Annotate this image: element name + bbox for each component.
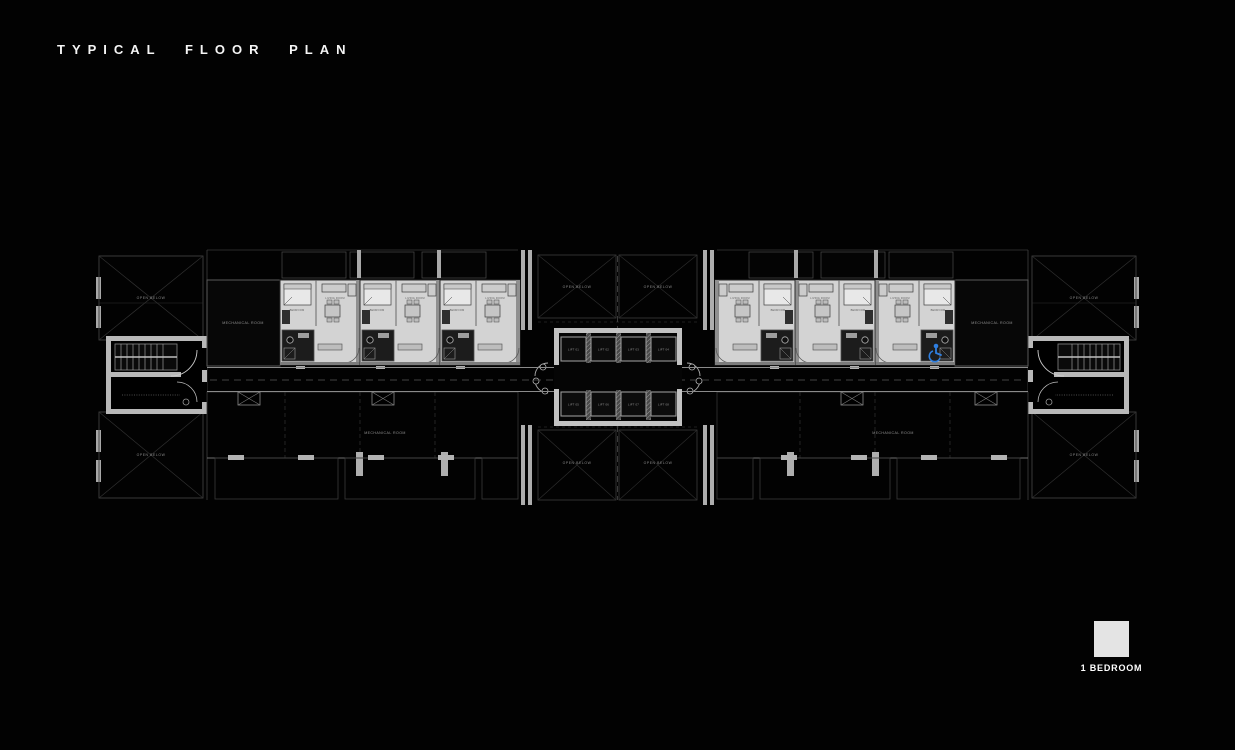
lift-label: LIFT 06 [598,403,609,407]
page-background: TYPICAL FLOOR PLAN [0,0,1235,750]
unit-bedroom-label: BEDROOM [450,308,465,312]
mechanical-room-label: MECHANICAL ROOM [971,321,1013,325]
unit-bedroom-label: BEDROOM [771,308,786,312]
lift-label: LIFT 01 [568,348,579,352]
mechanical-room-label: MECHANICAL ROOM [872,431,914,435]
open-below-label: OPEN BELOW [1070,296,1099,300]
unit-bedroom-label: BEDROOM [931,308,946,312]
open-below-label: OPEN BELOW [563,461,592,465]
open-below-label: OPEN BELOW [563,285,592,289]
lift-label: LIFT 04 [658,348,669,352]
right-wing [619,250,1139,505]
floor-plan-drawing: LIFT 01 LIFT 02 LIFT 03 LIFT 04 LIFT 05 … [0,0,1235,750]
unit-bedroom-label: BEDROOM [370,308,385,312]
unit-bedroom-label: BEDROOM [290,308,305,312]
open-below-label: OPEN BELOW [137,296,166,300]
open-below-label: OPEN BELOW [644,461,673,465]
lift-label: LIFT 08 [658,403,669,407]
unit-living-label: LIVING ROOM [890,296,910,300]
unit-living-label: LIVING ROOM [730,296,750,300]
lift-label: LIFT 02 [598,348,609,352]
left-wing [96,250,616,505]
legend-swatch-1bedroom [1094,621,1129,657]
open-below-label: OPEN BELOW [1070,453,1099,457]
unit-living-label: LIVING ROOM [405,296,425,300]
unit-living-label: LIVING ROOM [485,296,505,300]
lift-core: LIFT 01 LIFT 02 LIFT 03 LIFT 04 LIFT 05 … [554,328,682,426]
open-below-label: OPEN BELOW [644,285,673,289]
lift-label: LIFT 05 [568,403,579,407]
lift-label: LIFT 07 [628,403,639,407]
open-below-label: OPEN BELOW [137,453,166,457]
mechanical-room-label: MECHANICAL ROOM [222,321,264,325]
unit-bedroom-label: BEDROOM [851,308,866,312]
mechanical-room-label: MECHANICAL ROOM [364,431,406,435]
unit-living-label: LIVING ROOM [810,296,830,300]
unit-living-label: LIVING ROOM [325,296,345,300]
legend-label-1bedroom: 1 BEDROOM [1064,663,1159,673]
lift-label: LIFT 03 [628,348,639,352]
